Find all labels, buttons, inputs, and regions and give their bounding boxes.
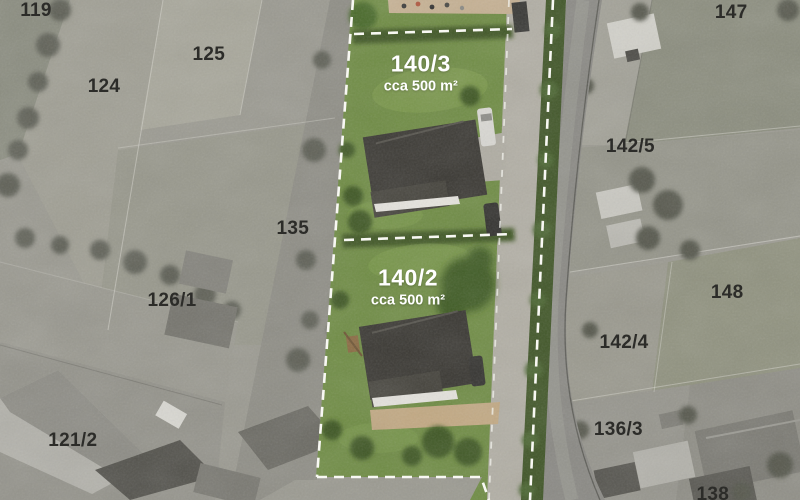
aerial-parcel-map: 119124125135126/1121/2147142/5148142/413…	[0, 0, 800, 500]
aerial-photo	[0, 0, 800, 500]
grain-coarse	[0, 0, 800, 500]
